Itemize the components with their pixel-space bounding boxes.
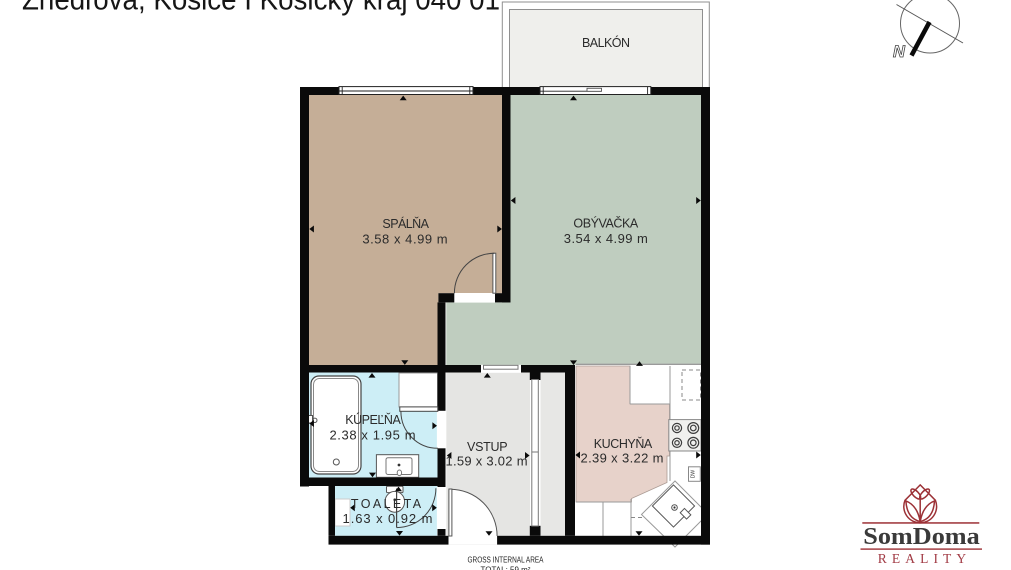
svg-text:2.38 x 1.95 m: 2.38 x 1.95 m <box>329 427 415 442</box>
svg-text:2.39 x 3.22 m: 2.39 x 3.22 m <box>581 450 664 465</box>
svg-text:3.54 x 4.99 m: 3.54 x 4.99 m <box>564 231 648 246</box>
svg-text:DW: DW <box>690 470 696 479</box>
svg-text:SPÁLŇA: SPÁLŇA <box>382 216 429 231</box>
svg-text:REALITY: REALITY <box>878 551 971 566</box>
svg-text:TOTAL: 59 m²: TOTAL: 59 m² <box>481 566 531 570</box>
svg-text:1.59 x 3.02 m: 1.59 x 3.02 m <box>445 454 527 469</box>
svg-text:VSTUP: VSTUP <box>467 440 508 454</box>
svg-text:3.58 x 4.99 m: 3.58 x 4.99 m <box>362 231 447 246</box>
svg-text:1.63 x 0.92 m: 1.63 x 0.92 m <box>343 511 433 526</box>
svg-text:OBÝVAČKA: OBÝVAČKA <box>573 216 638 231</box>
svg-text:N: N <box>893 43 906 61</box>
svg-text:KUCHYŇA: KUCHYŇA <box>594 436 653 451</box>
svg-text:Zhedľova, Košice I Košický kra: Zhedľova, Košice I Košický kraj 040 01 <box>22 0 500 16</box>
svg-text:KÚPEĽŇA: KÚPEĽŇA <box>345 412 401 427</box>
svg-text:GROSS INTERNAL AREA: GROSS INTERNAL AREA <box>468 556 545 565</box>
svg-text:BALKÓN: BALKÓN <box>582 35 630 50</box>
svg-text:SomDoma: SomDoma <box>863 523 980 550</box>
